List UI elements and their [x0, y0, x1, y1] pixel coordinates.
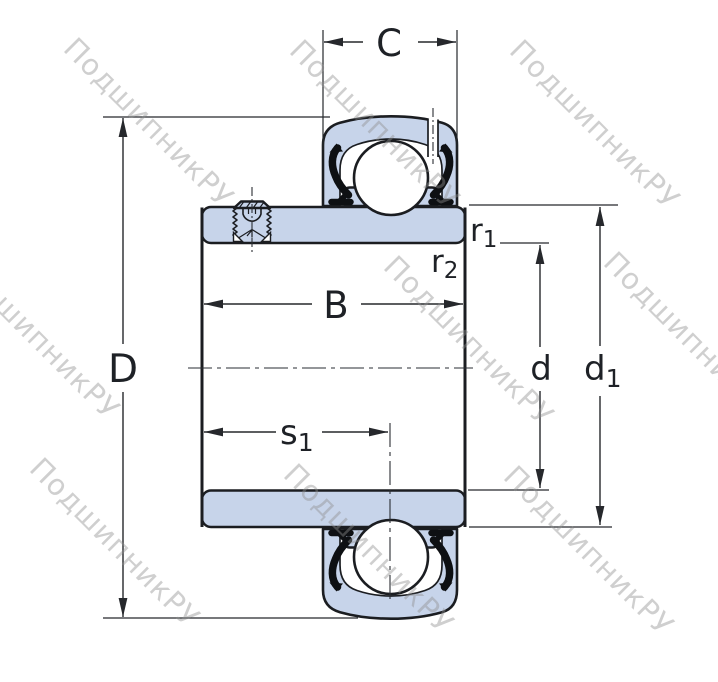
- watermark-text: ПодшипникРУ: [23, 451, 206, 634]
- dim-label-r1-base: r: [470, 213, 483, 249]
- watermark-layer: ПодшипникРУ ПодшипникРУ ПодшипникРУ Подш…: [0, 31, 718, 642]
- dim-label-s1: s1: [280, 413, 314, 457]
- arrowhead-left: [204, 428, 223, 437]
- dim-label-s1-base: s: [280, 413, 298, 453]
- watermark-text: ПодшипникРУ: [497, 459, 680, 642]
- dim-label-r2-sub: 2: [444, 258, 459, 284]
- arrowhead-bottom: [596, 506, 605, 525]
- arrowhead-top: [536, 245, 545, 264]
- dimension-s1: s1: [204, 413, 388, 457]
- bearing-cross-section-diagram: C D B s1 d d1 r1: [0, 0, 718, 682]
- dim-label-D: D: [108, 347, 138, 392]
- arrowhead-left: [204, 300, 223, 309]
- arrowhead-top: [596, 207, 605, 226]
- dim-label-C: C: [376, 22, 402, 65]
- dim-label-r1: r1: [470, 213, 497, 253]
- watermark-text: ПодшипникРУ: [377, 249, 560, 432]
- arrowhead-right: [369, 428, 388, 437]
- watermark-text: ПодшипникРУ: [503, 33, 686, 216]
- arrowhead-right: [437, 38, 456, 47]
- watermark-text: ПодшипникРУ: [597, 245, 718, 428]
- watermark-text: ПодшипникРУ: [0, 243, 127, 426]
- arrowhead-left: [324, 38, 343, 47]
- dim-label-r2-base: r: [431, 244, 444, 280]
- inner-ring-sleeve-top: [202, 207, 465, 243]
- arrowhead-bottom: [119, 598, 128, 617]
- inner-ring-sleeve: [202, 207, 465, 527]
- dim-label-s1-sub: 1: [298, 428, 314, 457]
- watermark-text: ПодшипникРУ: [57, 31, 240, 214]
- dim-label-B: B: [323, 284, 348, 327]
- dim-label-d1-base: d: [584, 349, 606, 389]
- dim-label-r2: r2: [431, 244, 458, 284]
- dim-label-d1-sub: 1: [606, 364, 622, 393]
- bearing-drawing-page: C D B s1 d d1 r1: [0, 0, 718, 682]
- dim-label-d1: d1: [584, 349, 622, 393]
- dim-label-r1-sub: 1: [483, 227, 498, 253]
